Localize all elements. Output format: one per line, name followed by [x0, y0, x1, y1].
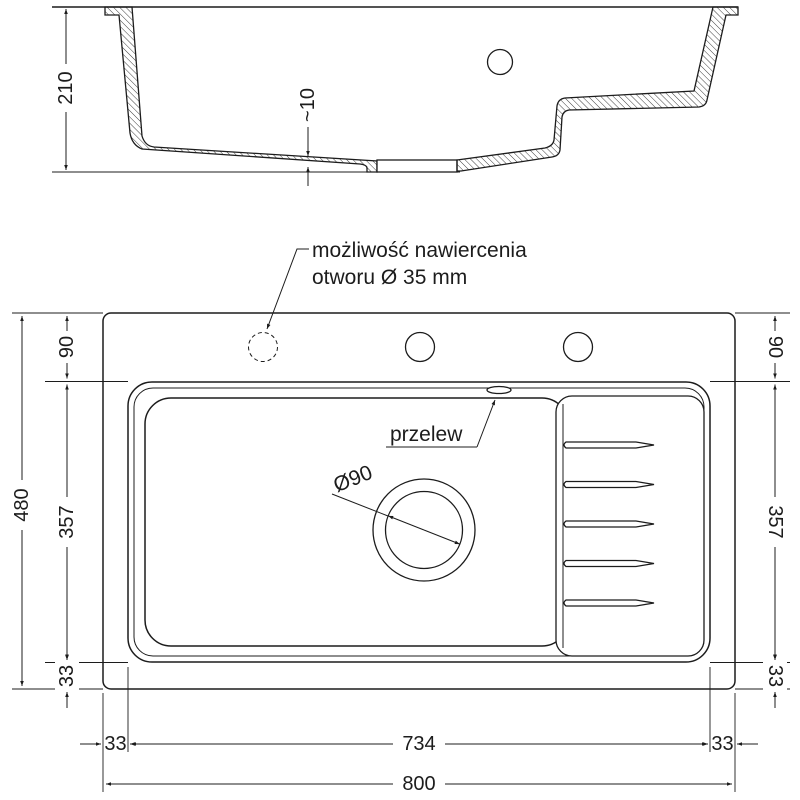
sink-technical-drawing: 210 ~10 możliwość nawiercenia otworu Ø 3…: [0, 0, 800, 800]
dim-bottom-thickness: ~10: [297, 88, 319, 186]
groove-5: [564, 600, 654, 606]
drill-note-leader: [267, 249, 309, 329]
drill-note-text-1: możliwość nawiercenia: [312, 239, 527, 262]
bowl-edge: [145, 398, 568, 646]
dim-bottom-left-margin-label: 33: [104, 733, 126, 755]
dim-210-label: 210: [55, 71, 77, 104]
groove-1: [564, 442, 654, 448]
groove-3: [564, 521, 654, 527]
overflow-slot: [487, 387, 511, 394]
dim-overall-width-label: 800: [402, 773, 435, 795]
drill-option-hole-dashed: [249, 333, 278, 362]
dim-left-basin-label: 357: [56, 505, 78, 538]
overflow-callout: przelew: [386, 400, 495, 447]
dim-left-margin-label: 33: [56, 665, 78, 687]
drain-recess-section: [377, 160, 457, 172]
dims-right: 90 357 33: [710, 313, 790, 708]
drain-diameter-label: Ø90: [330, 461, 375, 497]
side-section-view: 210 ~10: [52, 7, 738, 186]
dims-left: 480 90 357 33: [10, 313, 128, 708]
dim-height-210: 210: [54, 9, 78, 170]
dim-bottom-right-margin-label: 33: [711, 733, 733, 755]
groove-2: [564, 482, 654, 488]
top-plan-view: Ø90 przelew: [103, 313, 735, 689]
faucet-hole-section: [488, 50, 513, 75]
faucet-hole-right: [564, 333, 593, 362]
overflow-label-text: przelew: [390, 423, 463, 446]
drill-note-text-2: otworu Ø 35 mm: [312, 266, 467, 289]
faucet-hole-middle: [406, 333, 435, 362]
left-wall-section: [105, 7, 377, 172]
dim-10-label: ~10: [297, 88, 319, 122]
dims-bottom: 734 33 33 800: [80, 667, 758, 796]
groove-4: [564, 561, 654, 567]
dim-right-margin-label: 33: [764, 665, 786, 687]
dim-left-deck-label: 90: [56, 336, 78, 358]
right-wall-section: [457, 7, 738, 171]
dim-basin-width-label: 734: [402, 733, 435, 755]
dim-480-label: 480: [11, 488, 33, 521]
drill-note: możliwość nawiercenia otworu Ø 35 mm: [267, 239, 527, 329]
dim-right-deck-label: 90: [764, 336, 786, 358]
dim-right-basin-label: 357: [764, 505, 786, 538]
drawing-canvas: 210 ~10 możliwość nawiercenia otworu Ø 3…: [0, 0, 800, 800]
